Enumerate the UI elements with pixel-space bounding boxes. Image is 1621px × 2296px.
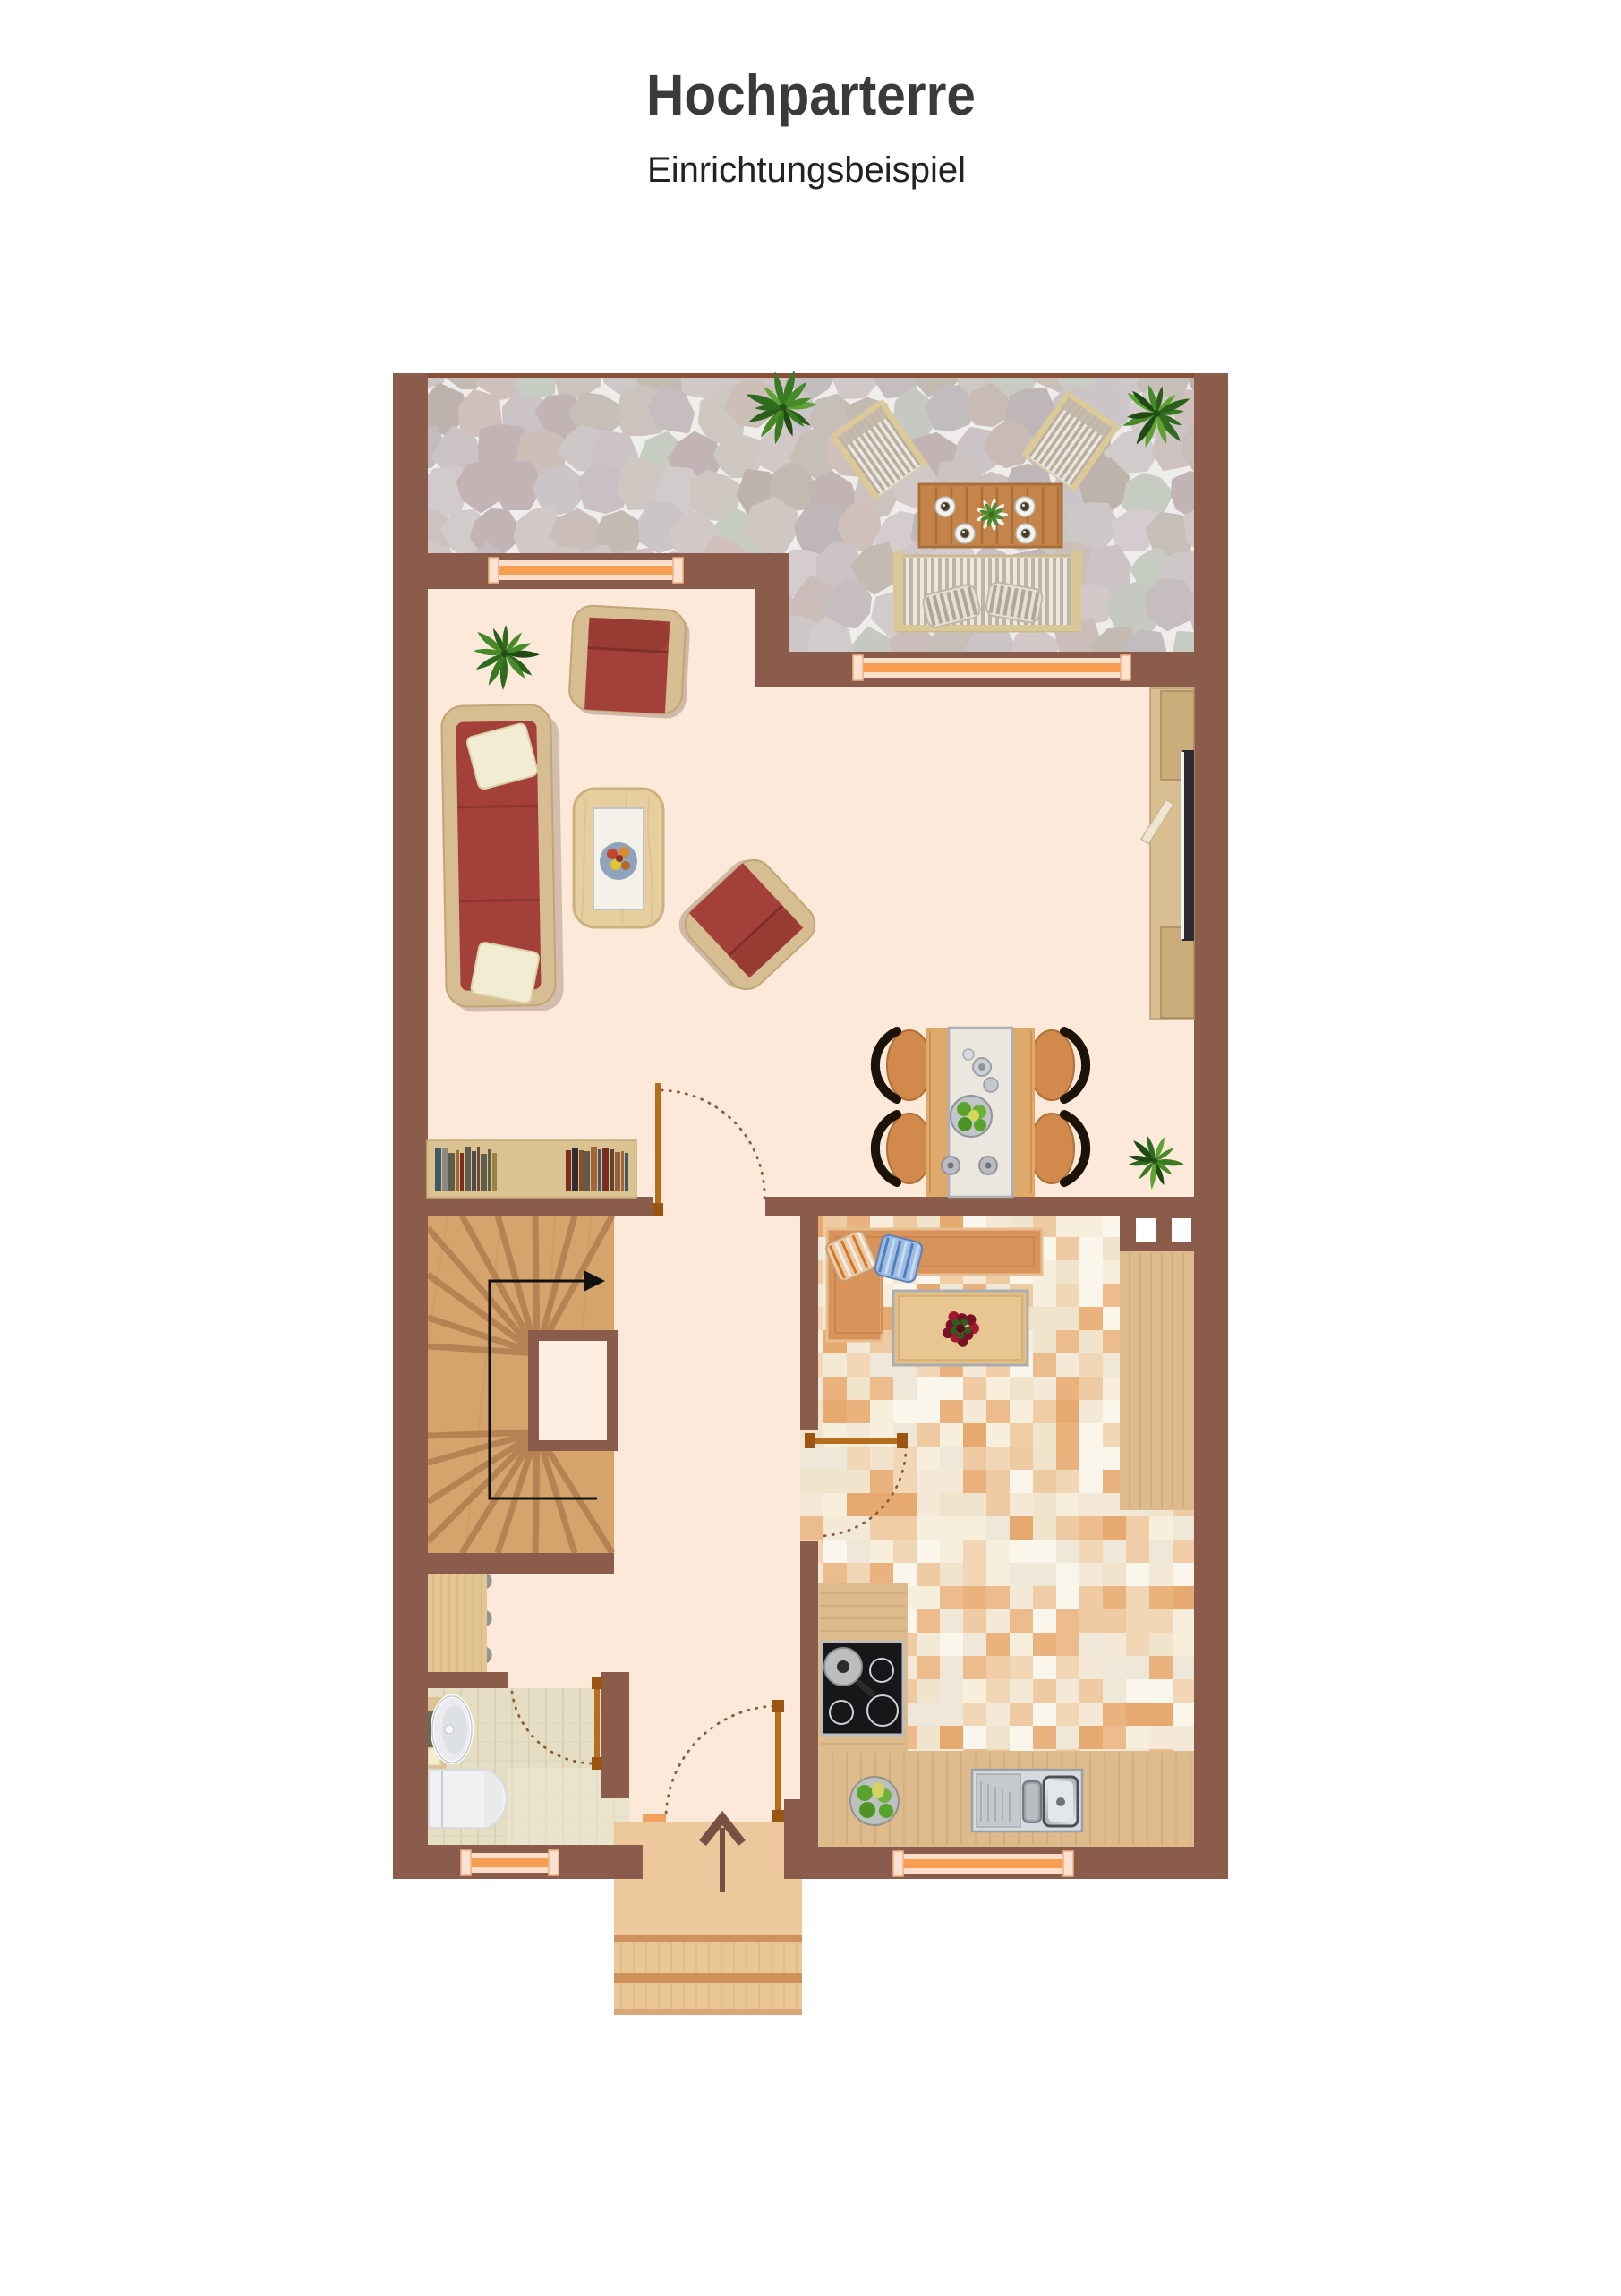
svg-text:Einrichtungsbeispiel: Einrichtungsbeispiel [647, 150, 966, 190]
svg-text:Hochparterre: Hochparterre [646, 63, 976, 127]
